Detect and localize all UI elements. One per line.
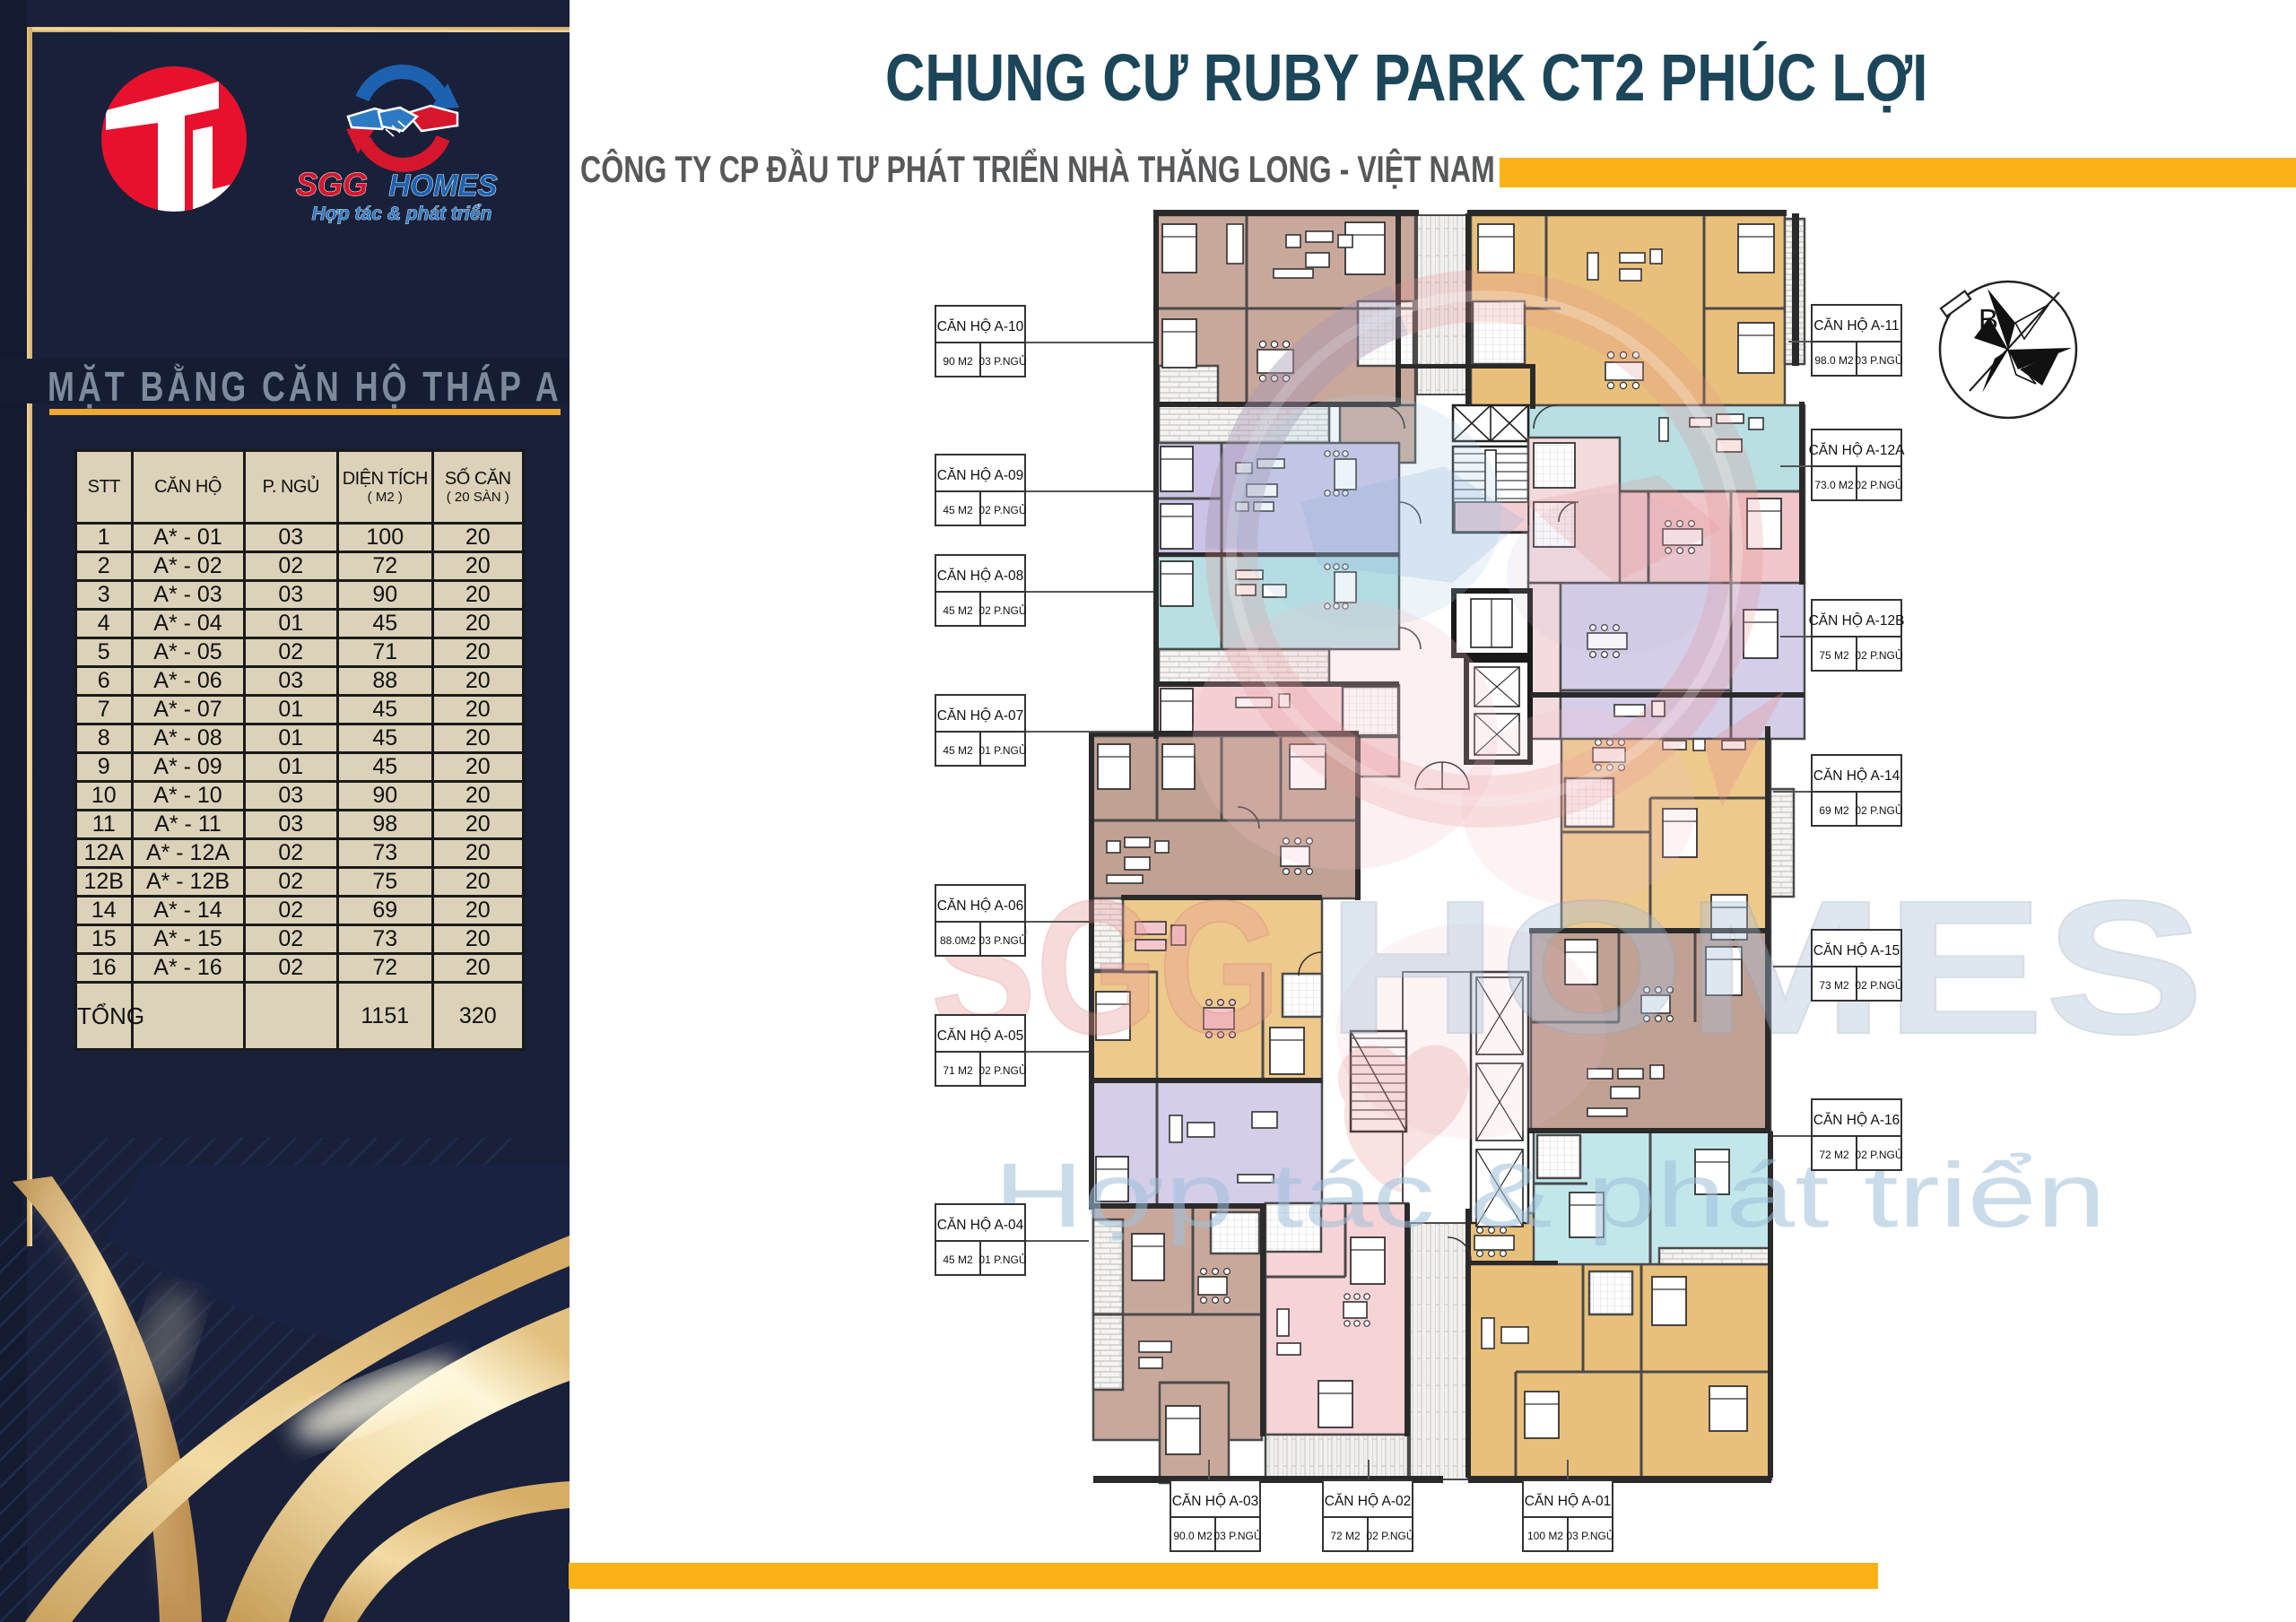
svg-text:03 P.NGỦ: 03 P.NGỦ: [1566, 1529, 1613, 1542]
svg-text:02 P.NGỦ: 02 P.NGỦ: [1366, 1529, 1413, 1542]
svg-text:03 P.NGỦ: 03 P.NGỦ: [1213, 1529, 1261, 1542]
svg-text:72 M2: 72 M2: [1330, 1530, 1361, 1542]
svg-text:45 M2: 45 M2: [943, 1253, 973, 1266]
svg-text:98.0 M2: 98.0 M2: [1814, 354, 1854, 367]
svg-text:CĂN HỘ A-16: CĂN HỘ A-16: [1813, 1113, 1900, 1128]
svg-text:CĂN HỘ A-11: CĂN HỘ A-11: [1813, 318, 1899, 334]
svg-text:HOMES: HOMES: [1326, 861, 2205, 1073]
svg-text:02 P.NGỦ: 02 P.NGỦ: [978, 1063, 1026, 1077]
svg-text:45 M2: 45 M2: [943, 604, 973, 617]
svg-text:02 P.NGỦ: 02 P.NGỦ: [1855, 648, 1902, 662]
svg-text:90.0 M2: 90.0 M2: [1173, 1530, 1213, 1542]
svg-text:CĂN HỘ A-02: CĂN HỘ A-02: [1325, 1494, 1411, 1509]
svg-text:75 M2: 75 M2: [1819, 649, 1849, 662]
svg-text:CĂN HỘ A-15: CĂN HỘ A-15: [1813, 943, 1900, 958]
svg-text:02 P.NGỦ: 02 P.NGỦ: [978, 503, 1026, 516]
svg-text:02 P.NGỦ: 02 P.NGỦ: [1855, 803, 1902, 817]
svg-text:45 M2: 45 M2: [943, 744, 973, 757]
svg-text:CĂN HỘ A-05: CĂN HỘ A-05: [937, 1028, 1023, 1044]
svg-text:CĂN HỘ A-08: CĂN HỘ A-08: [937, 568, 1023, 584]
svg-text:71 M2: 71 M2: [943, 1064, 973, 1077]
svg-text:03 P.NGỦ: 03 P.NGỦ: [978, 933, 1026, 947]
svg-text:45 M2: 45 M2: [943, 504, 973, 516]
svg-text:CĂN HỘ A-03: CĂN HỘ A-03: [1172, 1494, 1258, 1509]
svg-text:03 P.NGỦ: 03 P.NGỦ: [978, 354, 1026, 368]
svg-text:CĂN HỘ A-12A: CĂN HỘ A-12A: [1809, 443, 1905, 458]
svg-text:01 P.NGỦ: 01 P.NGỦ: [978, 743, 1026, 757]
svg-text:CĂN HỘ A-09: CĂN HỘ A-09: [937, 468, 1023, 483]
svg-text:CĂN HỘ A-04: CĂN HỘ A-04: [937, 1218, 1024, 1233]
svg-text:CĂN HỘ A-01: CĂN HỘ A-01: [1525, 1494, 1611, 1509]
svg-text:02 P.NGỦ: 02 P.NGỦ: [1855, 1148, 1902, 1161]
svg-text:03 P.NGỦ: 03 P.NGỦ: [1855, 353, 1902, 367]
svg-text:73.0 M2: 73.0 M2: [1814, 479, 1854, 491]
svg-text:69 M2: 69 M2: [1819, 804, 1849, 817]
svg-text:02 P.NGỦ: 02 P.NGỦ: [1855, 478, 1902, 491]
svg-text:02 P.NGỦ: 02 P.NGỦ: [1855, 978, 1902, 992]
svg-text:CĂN HỘ A-07: CĂN HỘ A-07: [937, 708, 1023, 724]
svg-text:88.0M2: 88.0M2: [940, 934, 976, 947]
svg-text:02 P.NGỦ: 02 P.NGỦ: [978, 603, 1026, 617]
svg-text:73 M2: 73 M2: [1819, 979, 1849, 992]
svg-text:Hợp tác & phát triển: Hợp tác & phát triển: [994, 1144, 2106, 1246]
svg-text:90 M2: 90 M2: [943, 355, 973, 368]
svg-text:CĂN HỘ A-06: CĂN HỘ A-06: [937, 898, 1023, 914]
svg-text:CĂN HỘ A-10: CĂN HỘ A-10: [937, 319, 1024, 334]
svg-text:B: B: [1979, 303, 1998, 336]
svg-text:CĂN HỘ A-12B: CĂN HỘ A-12B: [1809, 613, 1905, 629]
svg-text:CĂN HỘ A-14: CĂN HỘ A-14: [1813, 768, 1900, 784]
svg-text:72 M2: 72 M2: [1819, 1149, 1849, 1161]
svg-text:01 P.NGỦ: 01 P.NGỦ: [978, 1253, 1026, 1266]
svg-text:100 M2: 100 M2: [1527, 1530, 1563, 1542]
